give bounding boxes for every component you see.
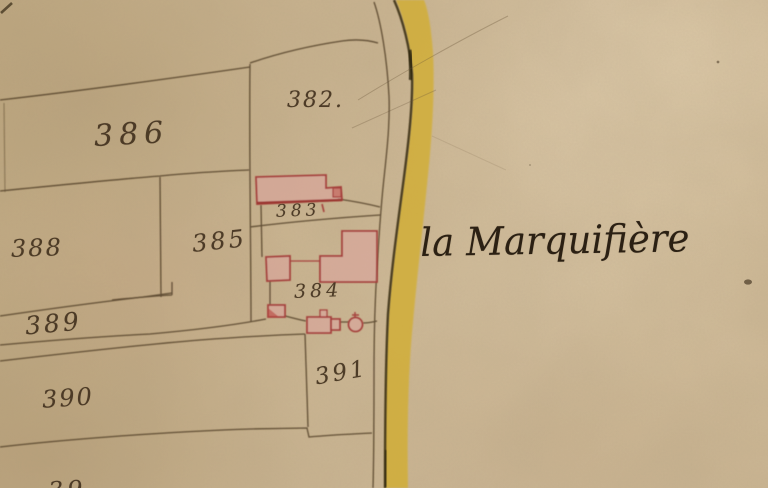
parcel-label-382: 382.: [287, 90, 344, 112]
building-pair-right: [331, 319, 340, 330]
place-name-label: la Marquifière: [420, 219, 690, 263]
parcel-label-384: 384: [294, 281, 343, 302]
parcel-label-386: 386: [93, 118, 170, 152]
building-main-north-annex: [333, 188, 341, 197]
bottom-edge-partial-label: 39: [47, 477, 87, 488]
parcel-label-390: 390: [41, 384, 94, 412]
road-edge-dark-segment: [409, 50, 411, 80]
building-pair-left: [307, 317, 331, 333]
parcel-label-383: 383: [276, 202, 321, 221]
map-canvas: 386 382. 383 385 388 389 384 390 391 39 …: [0, 0, 768, 488]
parcel-label-388: 388: [11, 235, 64, 261]
building-square: [266, 256, 290, 281]
building-well: [349, 318, 363, 332]
parcel-label-389: 389: [24, 309, 83, 339]
parcel-label-385: 385: [191, 226, 248, 256]
building-pair-chimney: [320, 310, 327, 317]
road-edge-dark-bottom: [385, 450, 386, 487]
